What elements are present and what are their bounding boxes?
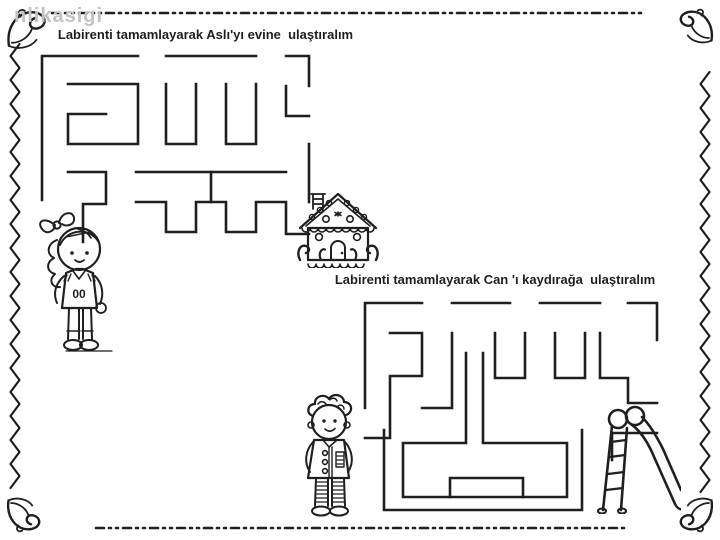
slide-board bbox=[632, 417, 681, 509]
gingerbread-house-illustration bbox=[292, 186, 384, 268]
watermark: nlikasigi bbox=[14, 5, 103, 28]
slide-ladder bbox=[598, 426, 627, 514]
boy-head bbox=[308, 395, 351, 439]
corner-flourish-top-right bbox=[681, 10, 712, 43]
slide-illustration bbox=[577, 402, 681, 514]
slide-handles bbox=[609, 407, 644, 428]
girl-illustration: 00 bbox=[33, 212, 115, 360]
corner-flourish-bottom-right bbox=[681, 499, 712, 532]
girl-body: 00 bbox=[55, 269, 106, 313]
boy-striped-pants bbox=[312, 478, 348, 516]
worksheet-page: nlikasigi Labirenti tamamlayarak Aslı'yı… bbox=[0, 0, 720, 540]
boy-illustration bbox=[287, 390, 369, 517]
border-right-zigzag bbox=[701, 72, 710, 492]
house-body bbox=[308, 212, 368, 260]
maze1-title: Labirenti tamamlayarak Aslı'yı evine ula… bbox=[38, 27, 373, 42]
maze2-title: Labirenti tamamlayarak Can 'ı kaydırağa … bbox=[322, 272, 668, 287]
girl-head bbox=[48, 228, 100, 287]
border-left-zigzag bbox=[11, 44, 20, 488]
girl-shirt-number: 00 bbox=[72, 287, 86, 301]
boy-jacket bbox=[306, 440, 352, 478]
candy-cane-icons bbox=[298, 246, 377, 268]
corner-flourish-bottom-left bbox=[8, 499, 39, 532]
girl-legs bbox=[64, 308, 112, 351]
